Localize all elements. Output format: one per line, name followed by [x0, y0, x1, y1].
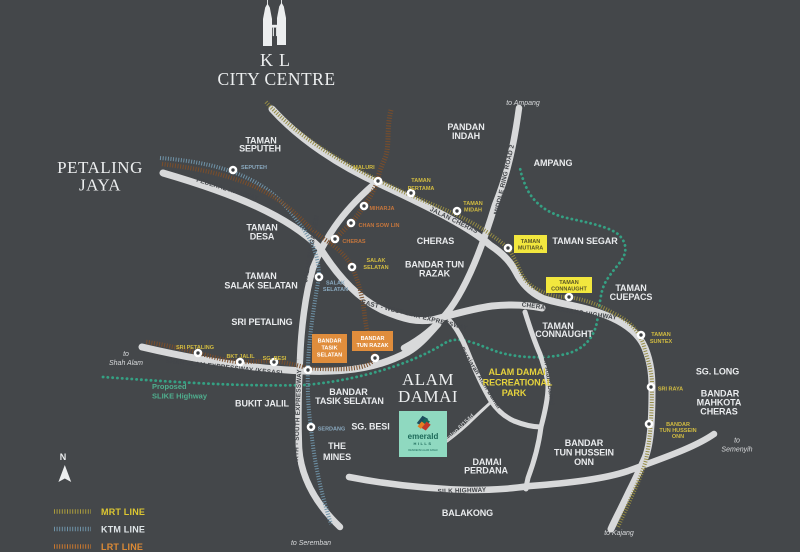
- svg-text:KL: KL: [260, 50, 296, 70]
- svg-text:SALAKSELATAN: SALAKSELATAN: [323, 281, 348, 294]
- svg-text:to Kajang: to Kajang: [604, 530, 634, 537]
- svg-text:SALAKSELATAN: SALAKSELATAN: [363, 258, 388, 271]
- svg-text:HILLS: HILLS: [413, 441, 432, 446]
- svg-text:TAMANMIDAH: TAMANMIDAH: [463, 201, 482, 214]
- svg-text:MALURI: MALURI: [353, 165, 375, 171]
- svg-text:TAMANCUEPACS: TAMANCUEPACS: [610, 283, 653, 302]
- svg-text:SG. BESI: SG. BESI: [263, 356, 287, 362]
- svg-text:MRT LINE: MRT LINE: [101, 507, 145, 517]
- svg-text:SERDANG: SERDANG: [318, 427, 346, 433]
- svg-text:SRI RAYA: SRI RAYA: [658, 387, 683, 393]
- svg-text:to Seremban: to Seremban: [291, 540, 331, 547]
- svg-text:CITY CENTRE: CITY CENTRE: [217, 69, 335, 89]
- svg-text:BALAKONG: BALAKONG: [442, 508, 493, 518]
- svg-text:PANDANINDAH: PANDANINDAH: [447, 122, 484, 141]
- svg-text:CHAN SOW LIN: CHAN SOW LIN: [359, 223, 400, 229]
- svg-text:TAMANDESA: TAMANDESA: [246, 223, 277, 242]
- svg-text:MIHARJA: MIHARJA: [369, 206, 394, 212]
- svg-text:LRT LINE: LRT LINE: [101, 542, 143, 552]
- svg-text:TAMANMUTIARA: TAMANMUTIARA: [518, 239, 543, 252]
- svg-text:TAMANSEPUTEH: TAMANSEPUTEH: [239, 136, 281, 154]
- svg-text:N: N: [60, 452, 67, 462]
- svg-text:SRI PETALING: SRI PETALING: [231, 317, 292, 327]
- svg-text:TAMAN SEGAR: TAMAN SEGAR: [552, 236, 618, 246]
- svg-text:SG. LONG: SG. LONG: [696, 367, 739, 377]
- svg-text:emerald: emerald: [408, 432, 439, 441]
- svg-text:BKT JALIL: BKT JALIL: [226, 354, 255, 360]
- svg-text:KTM LINE: KTM LINE: [101, 525, 145, 535]
- svg-text:ALAMDAMAI: ALAMDAMAI: [398, 370, 458, 406]
- svg-text:CHERAS: CHERAS: [417, 236, 455, 246]
- svg-text:SRI PETALING: SRI PETALING: [176, 345, 214, 351]
- svg-text:BANDARTUN RAZAK: BANDARTUN RAZAK: [356, 336, 388, 349]
- svg-text:SEPUTEH: SEPUTEH: [241, 165, 267, 171]
- svg-text:BANDARMAHKOTACHERAS: BANDARMAHKOTACHERAS: [697, 389, 742, 417]
- svg-text:SG. BESI: SG. BESI: [351, 422, 389, 432]
- svg-text:CHERAS: CHERAS: [342, 239, 366, 245]
- svg-text:to Ampang: to Ampang: [506, 100, 540, 107]
- svg-text:BUKIT JALIL: BUKIT JALIL: [235, 399, 290, 409]
- svg-text:AMPANG: AMPANG: [534, 158, 573, 168]
- svg-text:RESIDENSI ALAM DAMAI: RESIDENSI ALAM DAMAI: [408, 449, 438, 452]
- svg-text:TAMANSUNTEX: TAMANSUNTEX: [650, 332, 673, 345]
